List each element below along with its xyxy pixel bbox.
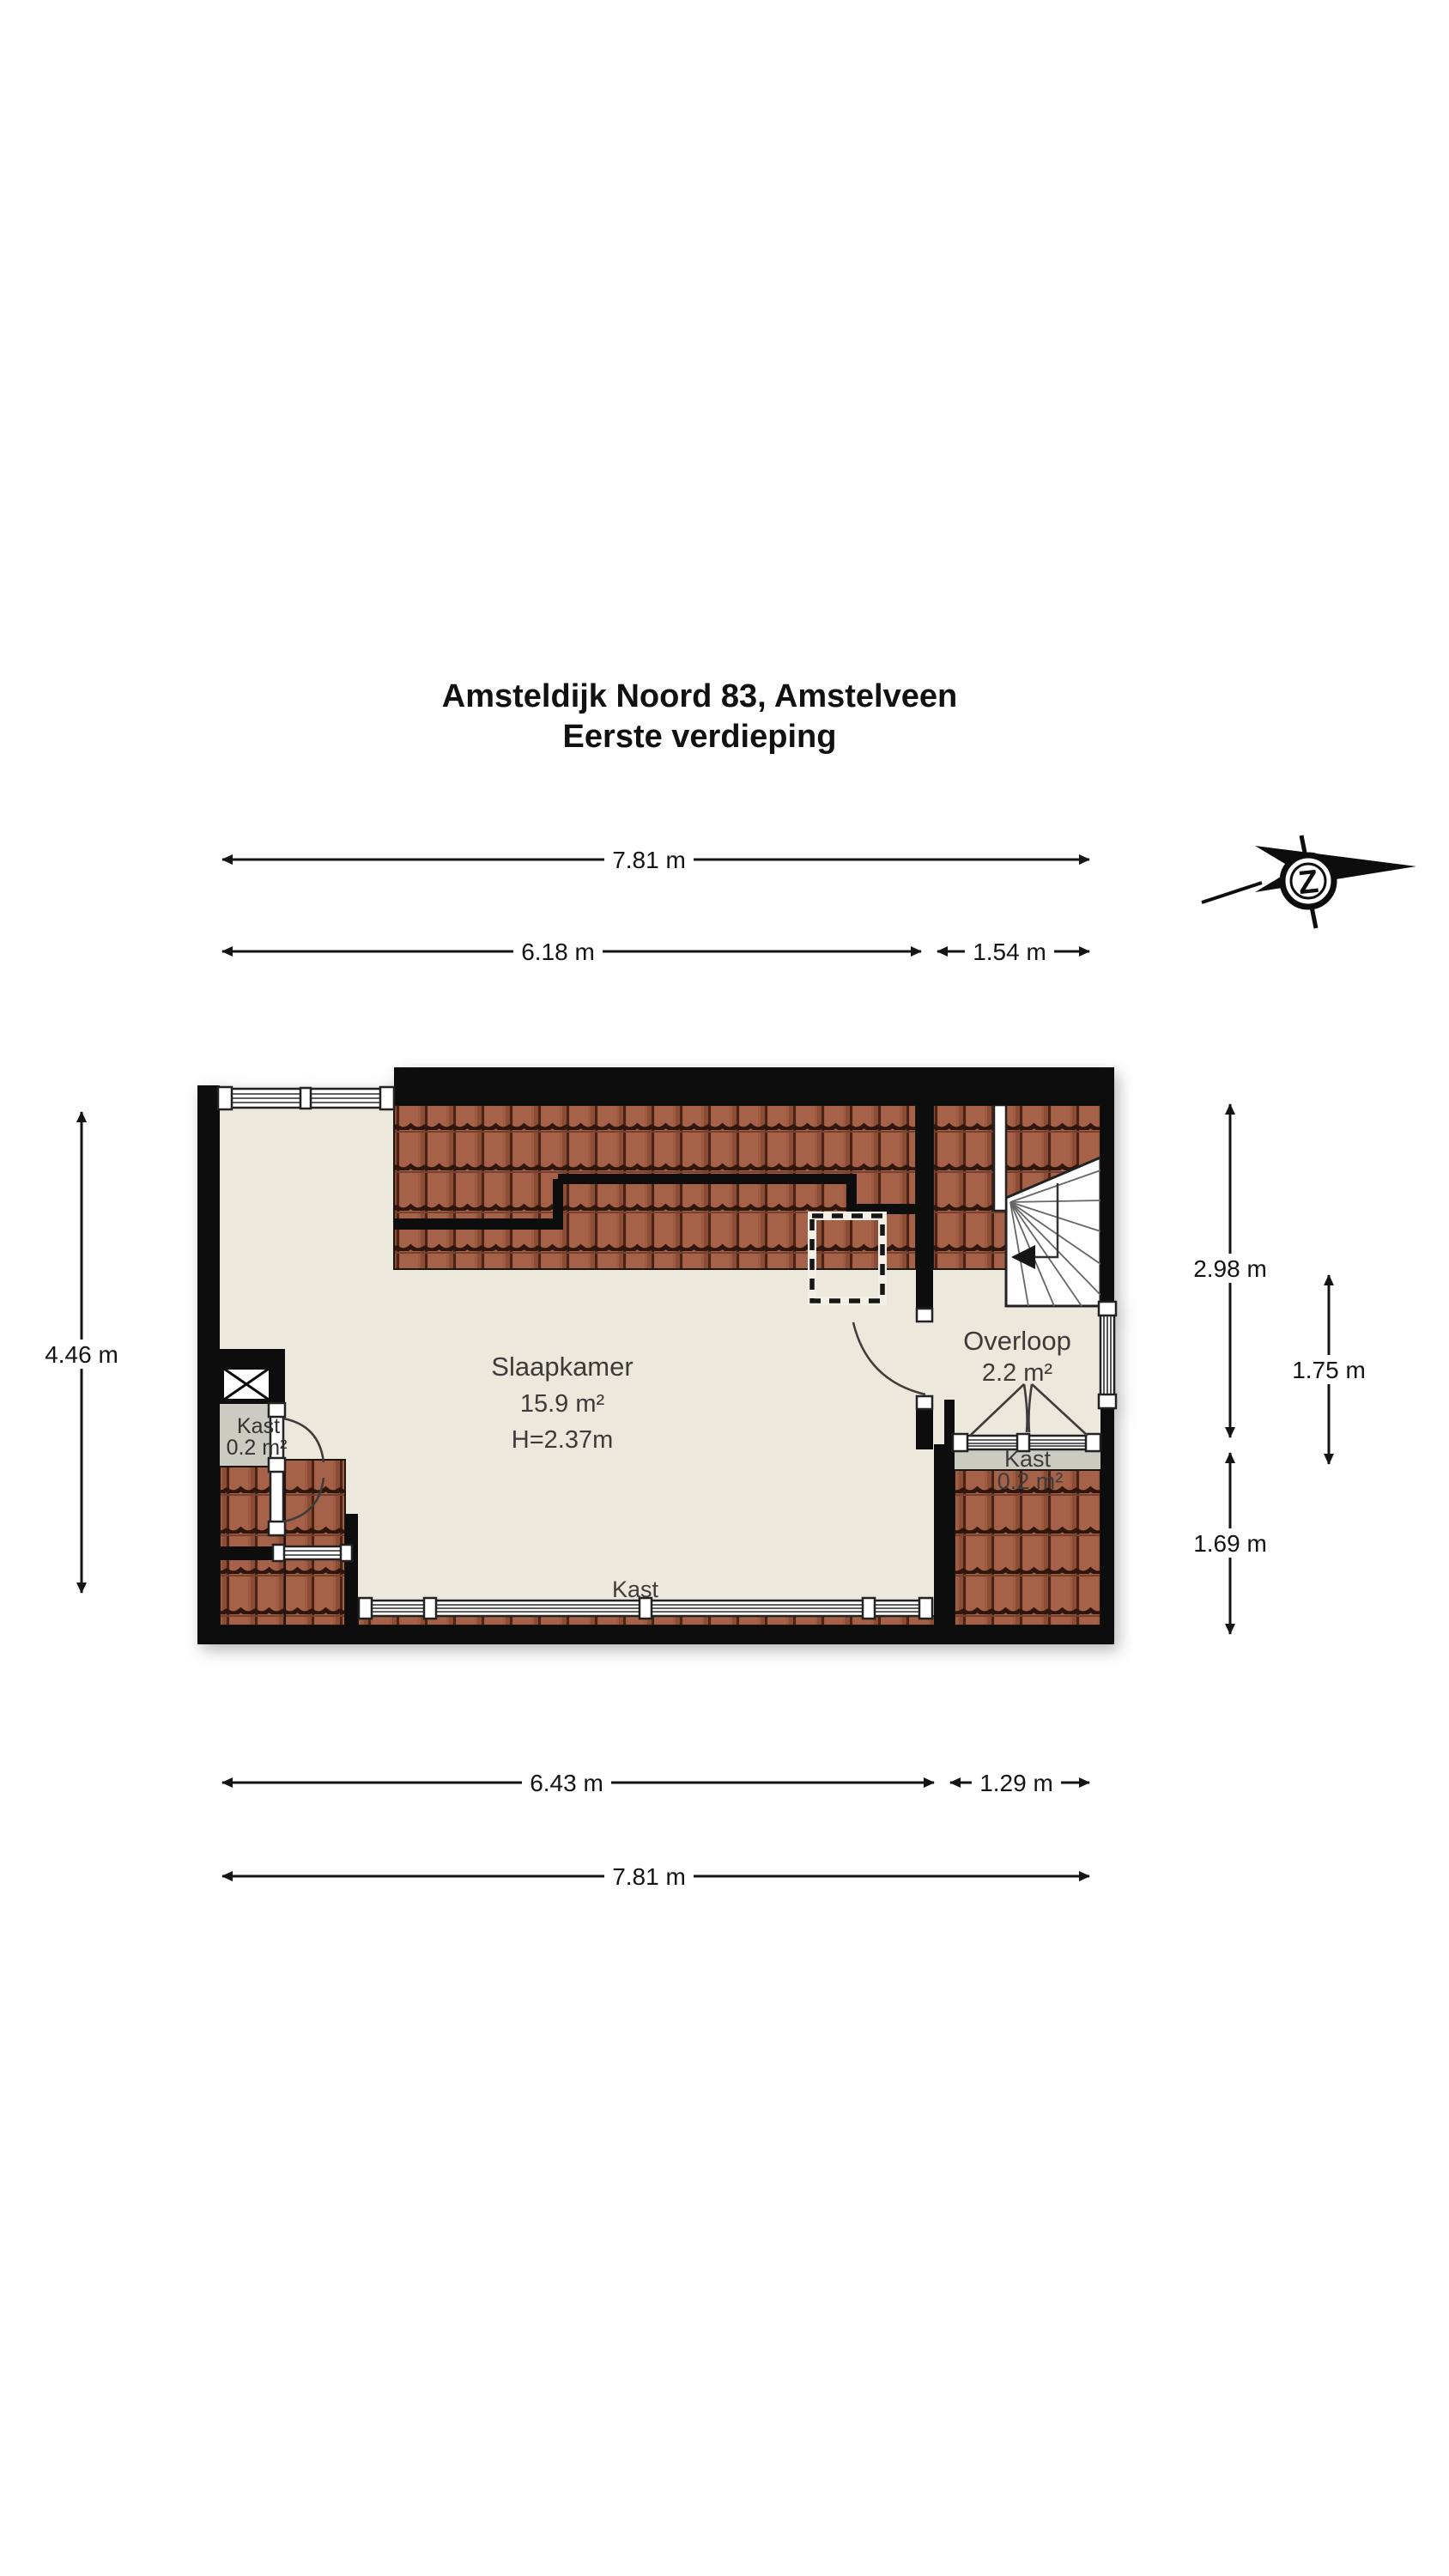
dim-top-outer: 7.81 m [612,847,686,873]
plan-title: Amsteldijk Noord 83, Amstelveen Eerste v… [442,678,957,755]
dim-bottom-inner-left: 6.43 m [530,1770,603,1796]
title-line-1: Amsteldijk Noord 83, Amstelveen [442,678,957,714]
floorplan-canvas: Amsteldijk Noord 83, Amstelveen Eerste v… [0,0,1449,2576]
label-kast-bottom: Kast [612,1577,659,1602]
window-overloop-right [1099,1302,1116,1408]
dim-top-inner-left: 6.18 m [521,939,595,965]
label-kast-left-area: 0.2 m² [227,1436,288,1460]
label-overloop: Overloop [963,1326,1071,1356]
shaft-crossed-box-icon [221,1367,271,1401]
label-kast-left: Kast [237,1414,280,1438]
label-overloop-area: 2.2 m² [982,1359,1053,1387]
dim-right-upper: 2.98 m [1193,1255,1267,1282]
label-slaapkamer: Slaapkamer [491,1352,633,1382]
dim-bottom-inner-right: 1.29 m [979,1770,1053,1796]
dim-right-inner: 1.75 m [1292,1357,1366,1383]
title-line-2: Eerste verdieping [563,719,837,755]
wall-left [197,1085,220,1644]
label-kast-right-area: 0.2 m² [997,1468,1064,1494]
window-left-small [273,1545,352,1561]
dim-bottom-outer: 7.81 m [612,1863,686,1890]
wall-divider-upper [916,1105,933,1309]
compass-letter: Z [1296,864,1319,902]
wall-top [394,1067,1114,1105]
floorplan-page: { "title": { "line1": "Amsteldijk Noord … [0,0,1449,2576]
window-top-left [218,1087,394,1109]
floor-plan: Slaapkamer 15.9 m² H=2.37m Overloop 2.2 … [197,1067,1116,1644]
wall-bottom [197,1625,1114,1644]
wall-kast-right [934,1444,955,1625]
dim-top-inner-right: 1.54 m [973,939,1046,965]
dim-right-lower: 1.69 m [1193,1530,1267,1557]
stair-railing [994,1105,1006,1211]
dim-left-height: 4.46 m [45,1341,118,1368]
compass-icon: Z [1202,835,1416,928]
wall-dormer-left [345,1514,358,1625]
wall-divider-lower [916,1409,933,1449]
label-slaapkamer-area: 15.9 m² [520,1390,605,1418]
label-slaapkamer-height: H=2.37m [512,1426,613,1454]
